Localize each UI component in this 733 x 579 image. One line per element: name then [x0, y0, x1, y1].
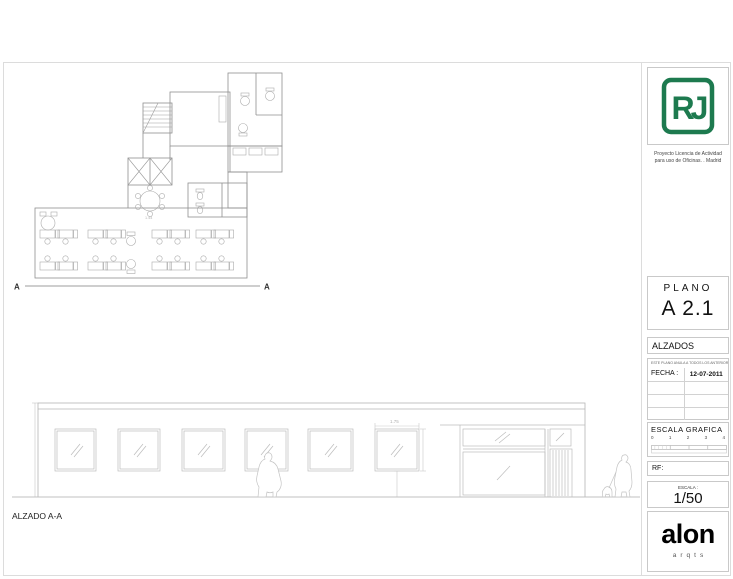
revision-note: ESTE PLANO ANULA A TODOS LOS ANTERIORES [648, 359, 728, 368]
tick-1: 1 [669, 435, 672, 440]
tick-2: 2 [687, 435, 690, 440]
empty-cell [648, 394, 685, 407]
empty-cell [685, 394, 728, 407]
plano-box: PLANO A 2.1 [647, 276, 729, 330]
scale-value: 1/50 [648, 490, 728, 507]
tick-4: 4 [722, 435, 725, 440]
graphic-scale-bar [651, 441, 725, 459]
firm-signature-box: alon arqts [647, 511, 729, 572]
fecha-table: ESTE PLANO ANULA A TODOS LOS ANTERIORES … [647, 358, 729, 420]
fecha-label: FECHA : [648, 368, 685, 381]
project-line2: para uso de Oficinas. . Madrid [647, 158, 729, 165]
sheet-border [3, 62, 731, 576]
titleblock-divider [641, 62, 642, 576]
tick-3: 3 [705, 435, 708, 440]
firm-subname: arqts [648, 552, 728, 559]
firm-logo-box: RJ [647, 67, 729, 145]
graphic-scale-ticks: 0 1 2 3 4 [648, 434, 728, 440]
empty-cell [685, 381, 728, 394]
graphic-scale-box: ESCALA GRAFICA 0 1 2 3 4 [647, 422, 729, 457]
empty-cell [685, 407, 728, 420]
firm-name: alon [648, 519, 728, 550]
rj-logo-monogram: RJ [672, 90, 707, 126]
rf-field: RF: [647, 461, 729, 476]
plano-label: PLANO [648, 283, 728, 294]
tick-0: 0 [651, 435, 654, 440]
sheet-title: ALZADOS [647, 337, 729, 354]
scale-box: ESCALA : 1/50 [647, 481, 729, 508]
project-line1: Proyecto Licencia de Actividad [647, 151, 729, 158]
drawing-sheet: 1.44 A A [0, 0, 733, 579]
empty-cell [648, 407, 685, 420]
fecha-value: 12-07-2011 [685, 368, 728, 381]
rj-logo-icon: RJ [661, 77, 715, 135]
empty-cell [648, 381, 685, 394]
sheet-number: A 2.1 [648, 297, 728, 321]
elevation-title: ALZADO A-A [12, 511, 62, 521]
graphic-scale-label: ESCALA GRAFICA [648, 423, 728, 434]
project-description: Proyecto Licencia de Actividad para uso … [647, 151, 729, 165]
